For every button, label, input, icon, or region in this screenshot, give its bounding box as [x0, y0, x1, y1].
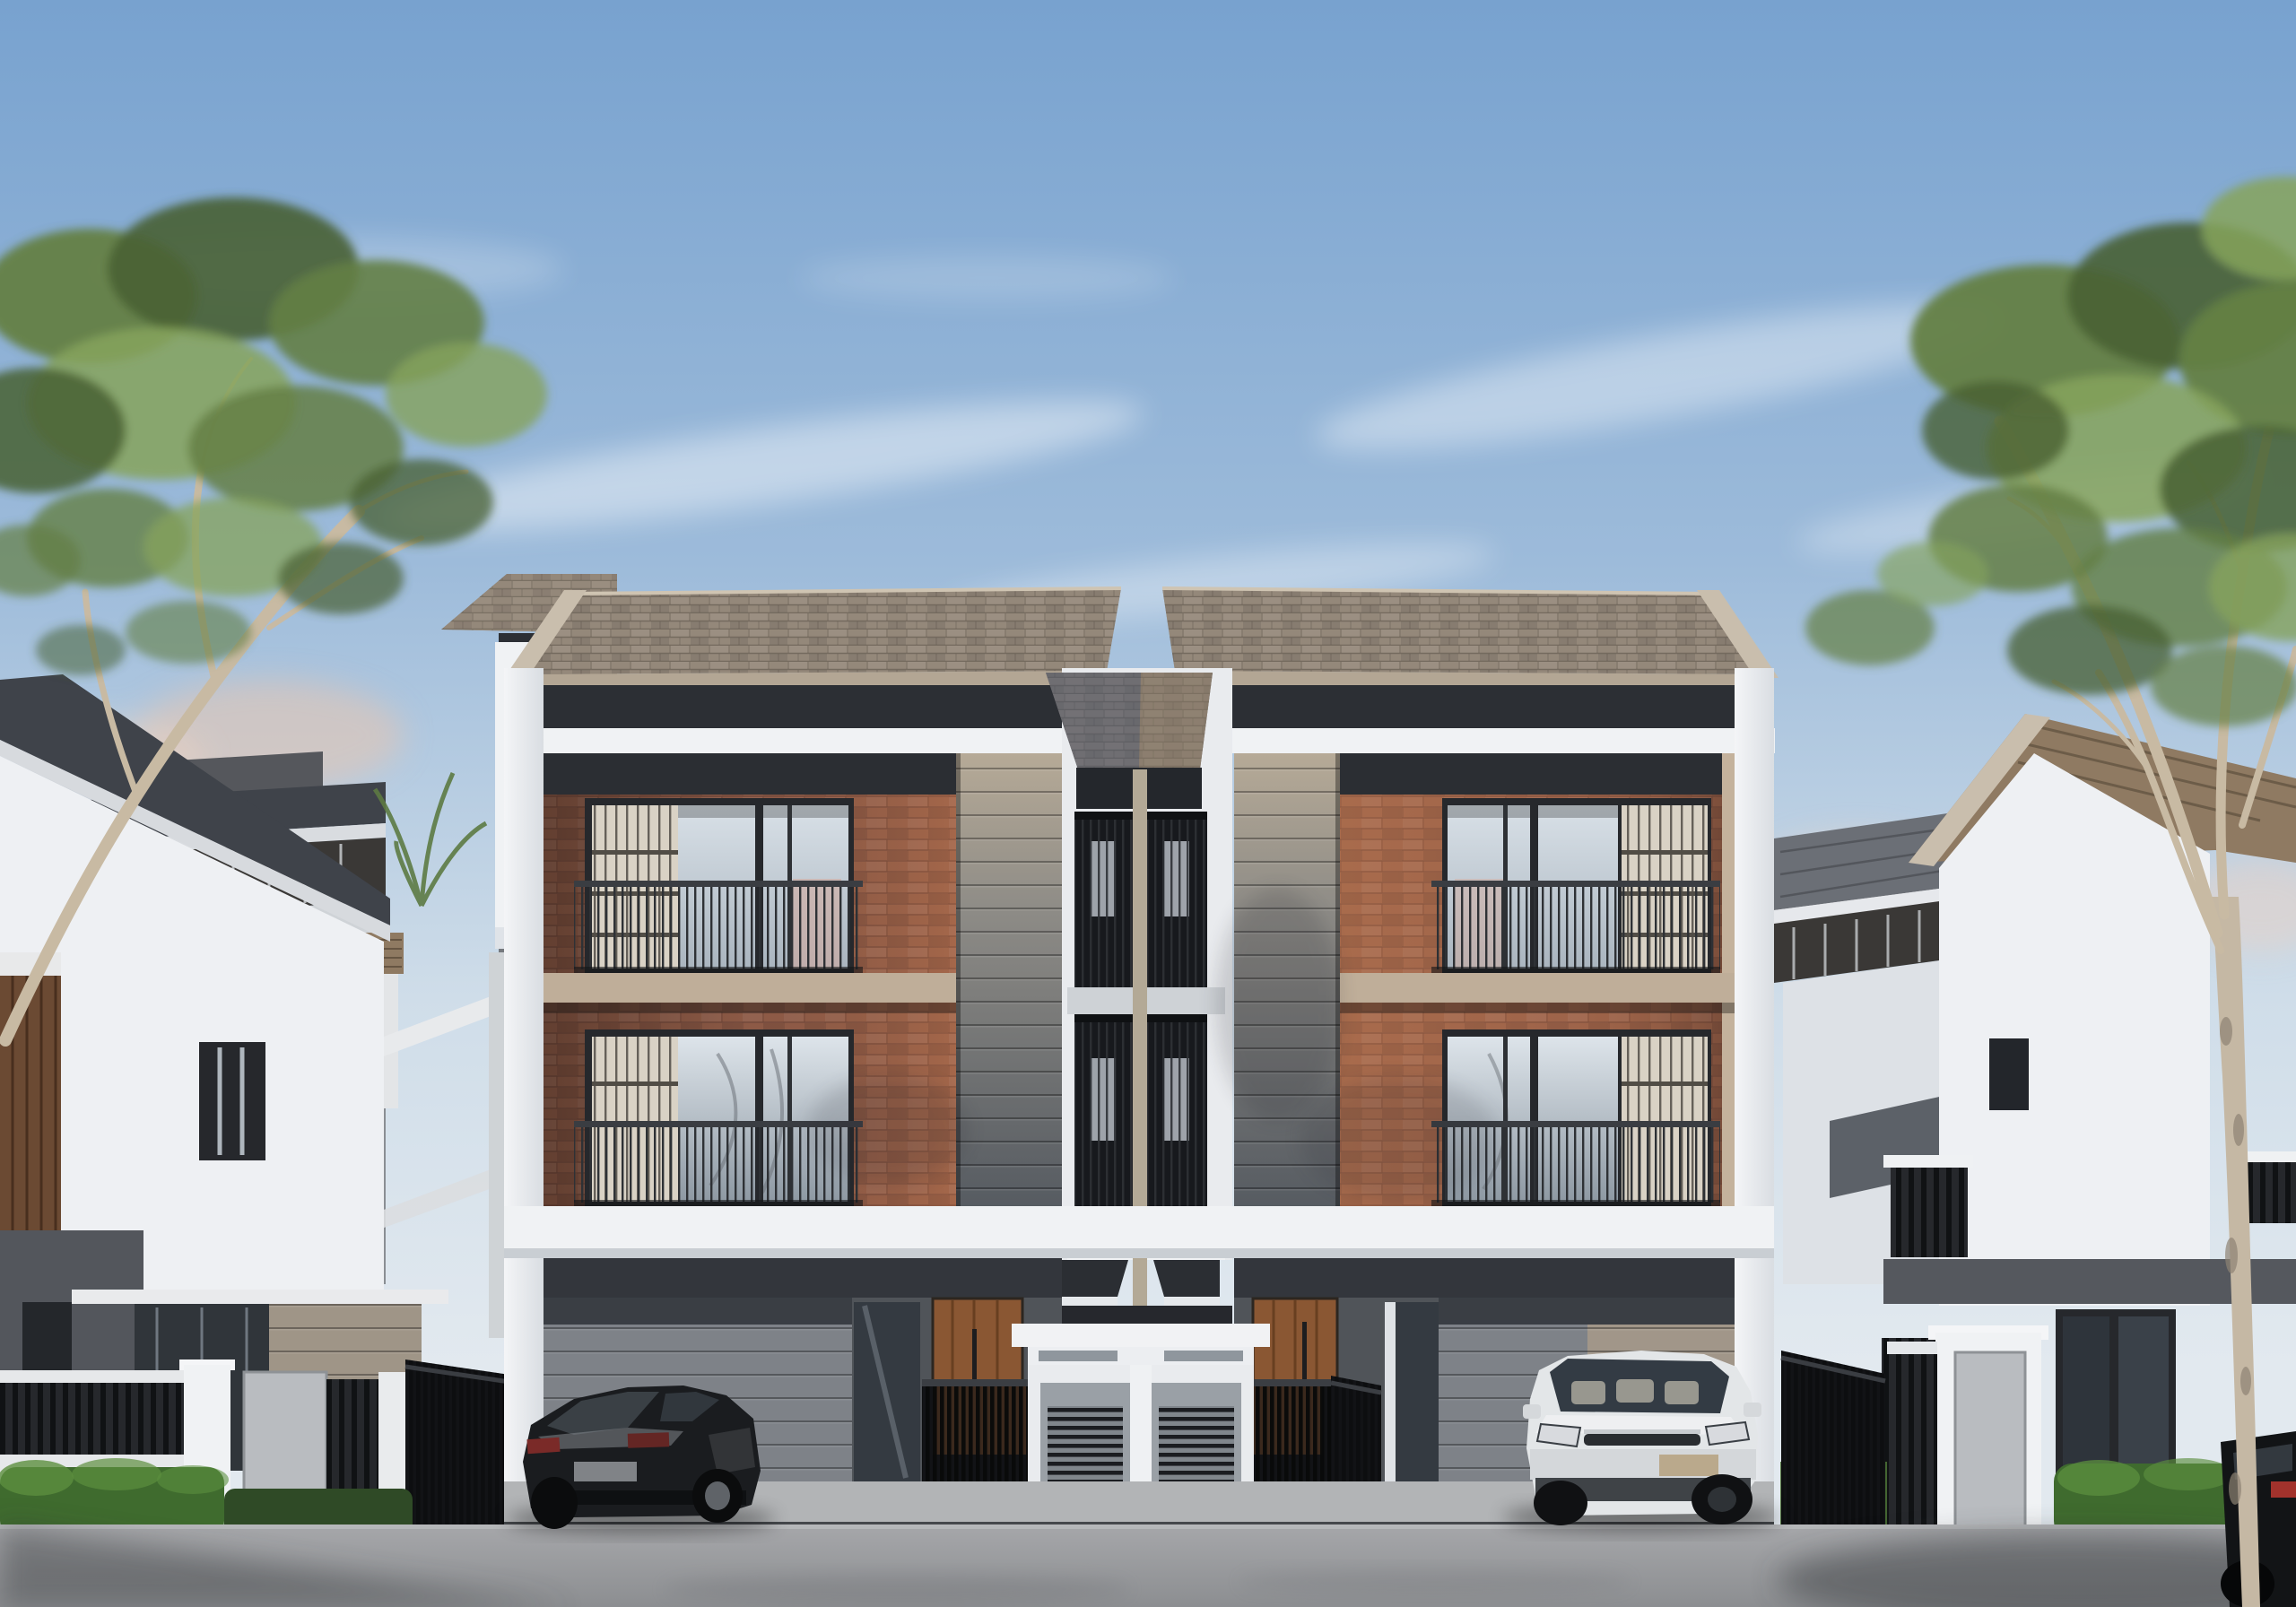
neighbor-small-window	[1989, 1038, 2029, 1110]
fence-top-white	[1887, 1342, 1937, 1354]
floor-slab	[544, 973, 956, 1003]
balcony-railing	[1891, 1168, 1968, 1257]
wheel	[1534, 1481, 1587, 1525]
license-plate	[1659, 1455, 1718, 1476]
pedestrian-gate-panel	[1955, 1352, 2025, 1528]
leaf-shadow	[1300, 1076, 1498, 1202]
white-suv	[1502, 1351, 1780, 1531]
kiosk-top-beam	[1012, 1324, 1270, 1347]
kiosk-beam-slot	[1164, 1351, 1243, 1361]
carport-ceiling-shadow	[544, 1298, 852, 1325]
carport-beam-shadow	[504, 1248, 1774, 1258]
balcony-bottom-rail	[1431, 967, 1720, 973]
wheel-rim	[705, 1481, 730, 1510]
balcony-bars	[574, 887, 863, 969]
scene-canvas	[0, 0, 2296, 1607]
leaf-shadow	[807, 1076, 969, 1184]
balcony-left-floor3	[574, 881, 863, 973]
hedge-highlight	[72, 1458, 161, 1490]
fence-railing	[0, 1383, 184, 1455]
frame-column-left	[504, 668, 544, 1260]
neighbor-ground-window	[22, 1302, 72, 1376]
unit-left-facade	[544, 753, 1062, 1209]
grille	[1584, 1434, 1700, 1446]
taillight	[2271, 1481, 2296, 1498]
neighbor-window	[199, 1042, 265, 1160]
side-mirror	[1744, 1403, 1761, 1417]
neighbor-porch-ceiling	[72, 1290, 448, 1304]
road-shadow-streak	[664, 1575, 1130, 1603]
window-glass	[2063, 1316, 2109, 1467]
wheel	[531, 1477, 578, 1529]
hedge-highlight	[2144, 1458, 2233, 1490]
seat-headrest	[1571, 1381, 1605, 1404]
side-mirror	[1523, 1404, 1541, 1419]
seat-headrest	[1616, 1379, 1654, 1403]
balcony-bottom-rail	[574, 967, 863, 973]
balcony-bottom-rail	[1431, 1200, 1720, 1206]
porch-roof-edge	[1164, 1297, 1220, 1306]
carport-fascia-right	[1234, 1258, 1752, 1298]
taillight-left	[526, 1438, 560, 1454]
carport-ceiling-shadow	[1439, 1298, 1735, 1325]
porch-roof-left	[1062, 1260, 1128, 1297]
entry-glass-panel	[1396, 1302, 1439, 1481]
bg-post	[489, 952, 505, 1338]
siding-boards	[956, 753, 1062, 1209]
lattice-crossbar	[1622, 1081, 1708, 1086]
leaf-shadow	[1215, 888, 1341, 1121]
curb-line	[0, 1524, 2296, 1529]
frame-column-right	[1735, 668, 1774, 1260]
neighbor-gable-wall	[1939, 753, 2210, 1306]
unit-right-facade	[1215, 753, 1752, 1209]
slab-shadow	[544, 1003, 956, 1013]
balcony-top-rail	[1431, 881, 1720, 887]
hedge-highlight	[2057, 1460, 2140, 1496]
seat-headrest	[1665, 1381, 1699, 1404]
balcony-top-rail	[574, 881, 863, 887]
balcony-railing	[2242, 1162, 2296, 1223]
grille-chrome-bar	[1584, 1429, 1700, 1434]
balcony-bars	[1431, 887, 1720, 969]
porch-roof-edge	[1062, 1297, 1118, 1306]
road-shadow-streak	[1238, 1569, 1632, 1594]
soffit-left	[538, 685, 1063, 730]
white-band-left	[504, 728, 1065, 753]
white-band-right	[1216, 728, 1775, 753]
balcony-right-floor3	[1431, 881, 1720, 973]
lattice-crossbar	[592, 850, 678, 855]
floor-slab	[1340, 973, 1752, 1003]
roof-left-shingles	[511, 588, 1121, 674]
carport-fascia-left	[544, 1258, 1062, 1298]
lattice-crossbar	[592, 1081, 678, 1086]
fence-panel	[1887, 1354, 1937, 1530]
lattice-crossbar	[1622, 850, 1708, 855]
window-glass	[2118, 1316, 2169, 1467]
townhouse-rendering	[0, 0, 2296, 1607]
license-plate	[574, 1462, 637, 1481]
roof-right-shingles	[1162, 588, 1771, 674]
balcony-cap	[1883, 1155, 1973, 1168]
soffit-right	[1220, 685, 1744, 730]
door-handle	[1302, 1322, 1307, 1379]
hedge-highlight	[0, 1460, 74, 1496]
slab-shadow	[1340, 1003, 1752, 1013]
kiosk-beam-slot	[1039, 1351, 1118, 1361]
hedge-highlight	[157, 1465, 229, 1494]
porch-roof-right	[1153, 1260, 1220, 1297]
taillight-right	[628, 1432, 670, 1448]
balcony-bottom-rail	[574, 1200, 863, 1206]
road	[0, 1524, 2296, 1607]
cloud-streak	[798, 256, 1175, 300]
wheel-rim	[1708, 1487, 1736, 1512]
